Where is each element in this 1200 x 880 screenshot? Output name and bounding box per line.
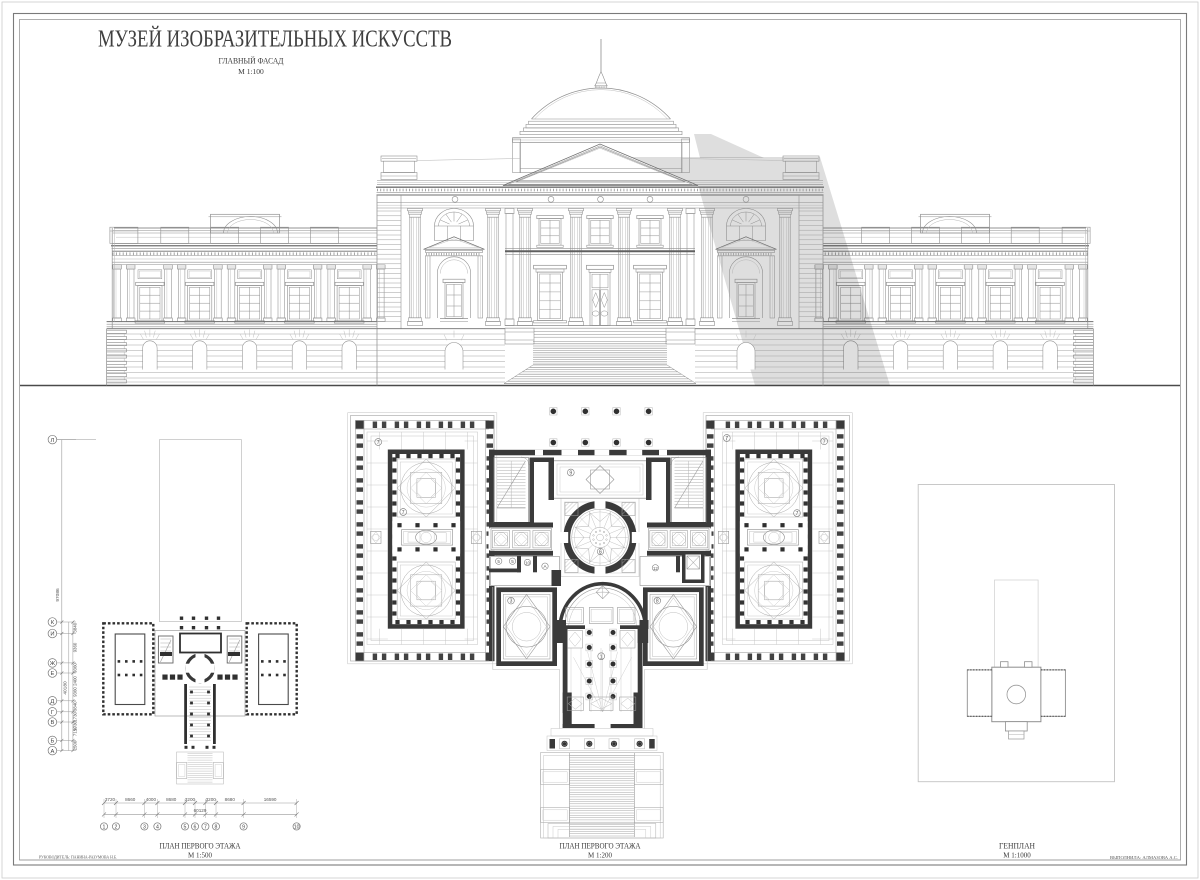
svg-text:7150: 7150 — [73, 726, 78, 736]
svg-text:5: 5 — [497, 559, 500, 564]
svg-text:1730: 1730 — [73, 711, 78, 721]
svg-text:9360: 9360 — [73, 687, 78, 697]
svg-text:Л: Л — [50, 438, 54, 444]
svg-text:12: 12 — [653, 566, 658, 571]
svg-text:8660: 8660 — [125, 797, 136, 802]
svg-text:К: К — [51, 620, 55, 626]
svg-text:ПЛАН ПЕРВОГО ЭТАЖА: ПЛАН ПЕРВОГО ЭТАЖА — [160, 842, 241, 851]
svg-text:М 1:200: М 1:200 — [588, 852, 612, 860]
svg-text:3: 3 — [143, 825, 146, 831]
svg-text:1: 1 — [600, 654, 603, 660]
svg-text:10: 10 — [294, 825, 300, 831]
svg-text:5: 5 — [511, 559, 514, 564]
svg-text:8680: 8680 — [225, 797, 236, 802]
svg-text:2: 2 — [115, 825, 118, 831]
svg-text:16590: 16590 — [264, 797, 277, 802]
svg-text:В: В — [50, 720, 54, 726]
svg-text:ГЛАВНЫЙ ФАСАД: ГЛАВНЫЙ ФАСАД — [219, 57, 285, 66]
svg-text:Д: Д — [50, 699, 54, 705]
svg-text:40180: 40180 — [63, 681, 69, 695]
svg-text:8: 8 — [215, 825, 218, 831]
svg-text:МУЗЕЙ ИЗОБРАЗИТЕЛЬНЫХ ИСКУССТВ: МУЗЕЙ ИЗОБРАЗИТЕЛЬНЫХ ИСКУССТВ — [98, 25, 452, 53]
svg-text:М 1:100: М 1:100 — [238, 67, 264, 76]
svg-text:60129: 60129 — [194, 808, 207, 813]
svg-text:3200: 3200 — [185, 797, 196, 802]
svg-text:9360: 9360 — [73, 663, 78, 673]
svg-text:5: 5 — [184, 825, 187, 831]
svg-text:7: 7 — [796, 511, 799, 517]
svg-text:И: И — [50, 632, 54, 638]
svg-text:97086: 97086 — [55, 588, 61, 602]
svg-text:РУКОВОДИТЕЛЬ: ПАНИНА-РАЗУМОВА: РУКОВОДИТЕЛЬ: ПАНИНА-РАЗУМОВА Н.Б. — [39, 855, 117, 860]
svg-text:2500: 2500 — [73, 740, 78, 750]
svg-text:3720: 3720 — [105, 797, 116, 802]
svg-text:3200: 3200 — [206, 797, 217, 802]
svg-text:Б: Б — [50, 739, 54, 745]
svg-text:М 1:500: М 1:500 — [188, 852, 212, 860]
svg-text:ПЛАН ПЕРВОГО ЭТАЖА: ПЛАН ПЕРВОГО ЭТАЖА — [560, 842, 641, 851]
svg-text:6: 6 — [194, 825, 197, 831]
svg-text:1: 1 — [103, 825, 106, 831]
svg-text:6: 6 — [599, 550, 602, 556]
svg-text:4: 4 — [156, 825, 159, 831]
svg-text:9: 9 — [242, 825, 245, 831]
svg-text:А: А — [50, 749, 54, 755]
svg-text:9360: 9360 — [73, 642, 78, 652]
svg-text:7: 7 — [823, 439, 826, 445]
svg-text:Е: Е — [50, 671, 54, 677]
svg-text:ВЫПОЛНИЛА: АЛМАЗОВА А.С.: ВЫПОЛНИЛА: АЛМАЗОВА А.С. — [1110, 855, 1178, 860]
svg-text:3840: 3840 — [73, 622, 78, 632]
svg-text:8: 8 — [656, 599, 659, 605]
svg-text:7: 7 — [377, 440, 380, 446]
svg-text:7: 7 — [204, 825, 207, 831]
svg-text:10: 10 — [525, 561, 531, 566]
svg-text:2400: 2400 — [73, 676, 78, 686]
svg-text:7: 7 — [402, 510, 405, 516]
svg-text:3840: 3840 — [73, 701, 78, 711]
svg-text:8680: 8680 — [166, 797, 177, 802]
svg-text:4000: 4000 — [146, 797, 157, 802]
svg-text:7: 7 — [725, 436, 728, 442]
svg-text:9: 9 — [569, 471, 572, 477]
svg-text:ГЕНПЛАН: ГЕНПЛАН — [999, 842, 1035, 851]
svg-text:М 1:1000: М 1:1000 — [1003, 852, 1031, 860]
svg-text:3: 3 — [510, 599, 513, 605]
svg-text:Ж: Ж — [50, 661, 56, 667]
